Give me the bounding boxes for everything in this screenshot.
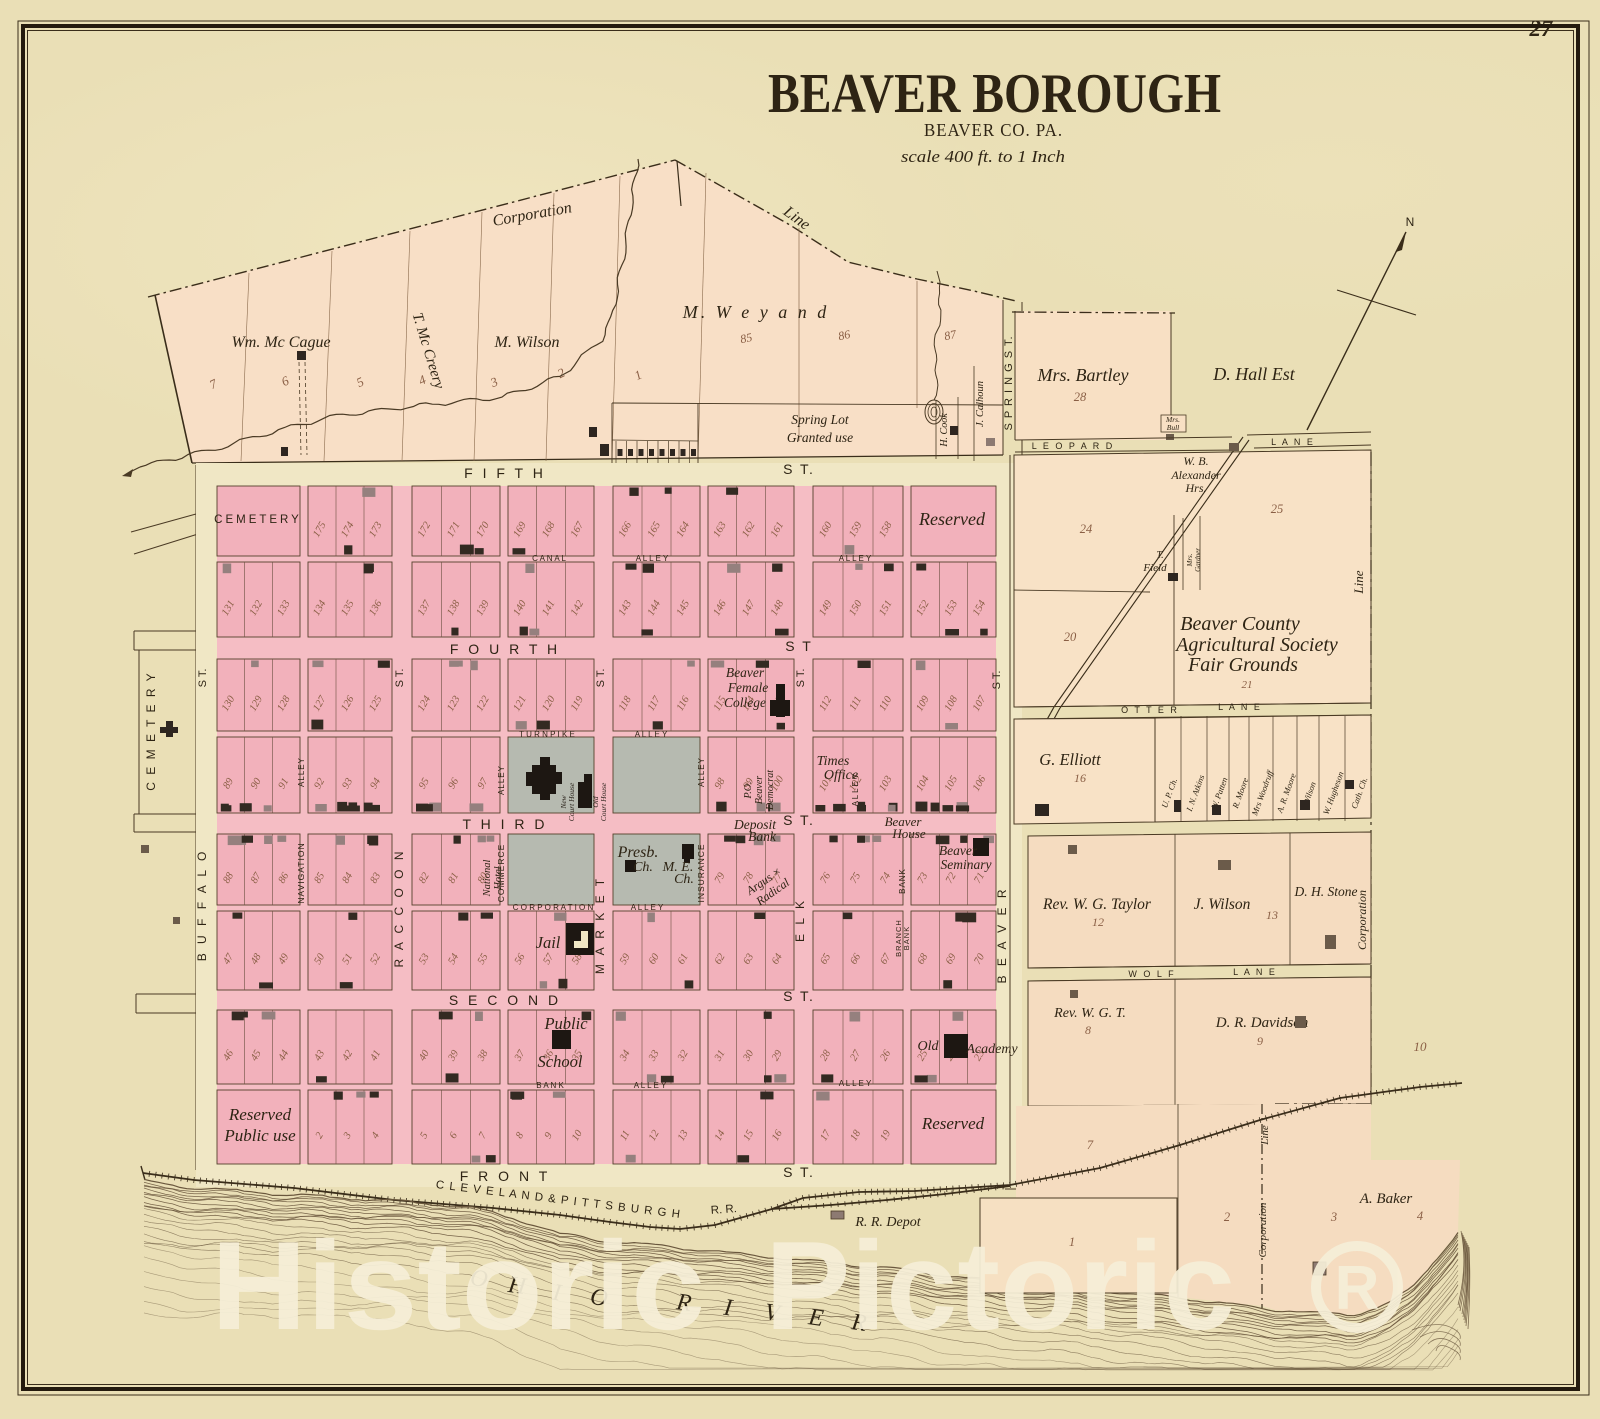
svg-text:9: 9: [1257, 1034, 1263, 1048]
svg-text:O T T E R: O T T E R: [1121, 705, 1179, 715]
svg-text:S T: S T: [785, 638, 813, 654]
svg-text:Beaver County: Beaver County: [1180, 613, 1300, 635]
svg-text:INSURANCE: INSURANCE: [696, 843, 706, 902]
svg-text:L E O P A R D: L E O P A R D: [1032, 441, 1115, 451]
svg-text:S T.: S T.: [595, 669, 607, 688]
svg-text:Beaver: Beaver: [726, 665, 765, 680]
svg-text:13: 13: [1266, 908, 1278, 922]
svg-text:M A R K E T: M A R K E T: [593, 876, 607, 974]
svg-text:S T.: S T.: [197, 669, 209, 688]
svg-text:21: 21: [1242, 679, 1253, 691]
svg-text:28: 28: [1074, 390, 1087, 404]
svg-text:Wm. Mc Cague: Wm. Mc Cague: [231, 334, 330, 351]
svg-text:S T.: S T.: [795, 669, 807, 688]
svg-text:Bank: Bank: [748, 829, 777, 844]
svg-text:B E A V E R: B E A V E R: [995, 886, 1009, 983]
svg-text:G. Elliott: G. Elliott: [1039, 750, 1101, 769]
svg-text:12: 12: [1092, 915, 1104, 929]
svg-text:Female: Female: [727, 680, 768, 695]
svg-text:C O R P O R A T I O N: C O R P O R A T I O N: [513, 903, 594, 912]
svg-text:Ch.: Ch.: [674, 872, 694, 887]
svg-text:Hrs.: Hrs.: [1184, 481, 1206, 495]
svg-text:Field: Field: [1142, 562, 1167, 574]
svg-text:D. R. Davidson: D. R. Davidson: [1215, 1015, 1309, 1031]
svg-text:National: National: [482, 860, 493, 898]
svg-text:BEAVER BOROUGH: BEAVER BOROUGH: [768, 63, 1221, 125]
svg-text:Reserved: Reserved: [918, 509, 986, 529]
svg-text:H. Cook: H. Cook: [939, 413, 950, 448]
svg-text:Granted use: Granted use: [787, 430, 853, 445]
svg-text:R A C C O O N: R A C C O O N: [392, 848, 406, 967]
svg-text:Fair Grounds: Fair Grounds: [1187, 654, 1298, 676]
svg-text:School: School: [538, 1052, 583, 1071]
svg-text:E L K: E L K: [793, 898, 807, 942]
svg-text:Ch.: Ch.: [633, 860, 653, 875]
svg-text:Historic: Historic: [211, 1215, 705, 1356]
svg-text:S T.: S T.: [783, 461, 815, 477]
svg-text:A L L E Y: A L L E Y: [635, 730, 668, 739]
svg-text:Public: Public: [543, 1014, 588, 1033]
svg-text:BEAVER CO. PA.: BEAVER CO. PA.: [924, 120, 1063, 140]
svg-text:A L L E Y: A L L E Y: [636, 554, 669, 563]
svg-text:Line: Line: [1259, 1125, 1271, 1146]
svg-text:Corporation: Corporation: [1355, 890, 1369, 950]
svg-text:S T.: S T.: [783, 812, 815, 828]
svg-text:F O U R T H: F O U R T H: [450, 641, 560, 657]
svg-text:Hotel: Hotel: [493, 866, 504, 890]
svg-text:Beaver: Beaver: [939, 843, 978, 858]
svg-text:Times: Times: [817, 754, 850, 769]
svg-text:10: 10: [1414, 1039, 1428, 1054]
svg-text:A L L E Y: A L L E Y: [631, 903, 664, 912]
svg-text:B A N K: B A N K: [536, 1081, 564, 1090]
svg-text:L A N E: L A N E: [1233, 967, 1277, 977]
svg-text:B U F F A L O: B U F F A L O: [195, 849, 209, 962]
svg-text:ALLEY: ALLEY: [497, 765, 506, 795]
svg-text:Mrs.: Mrs.: [1186, 553, 1194, 567]
svg-text:Bull: Bull: [1167, 423, 1180, 432]
svg-text:Agricultural Society: Agricultural Society: [1174, 634, 1338, 656]
svg-text:A L L E Y: A L L E Y: [634, 1081, 667, 1090]
svg-text:Public use: Public use: [223, 1126, 296, 1145]
svg-text:College: College: [724, 695, 766, 710]
svg-text:Democrat: Democrat: [765, 770, 776, 811]
svg-text:N: N: [1406, 215, 1415, 229]
svg-text:W O L F: W O L F: [1128, 969, 1175, 979]
svg-text:Beaver: Beaver: [754, 776, 765, 804]
svg-text:Spring Lot: Spring Lot: [791, 412, 850, 427]
svg-text:BANK: BANK: [898, 868, 907, 894]
svg-text:F R O N T: F R O N T: [460, 1168, 551, 1184]
svg-text:Gardner: Gardner: [1194, 548, 1202, 572]
svg-text:Seminary: Seminary: [941, 857, 992, 872]
svg-text:T H I R D: T H I R D: [462, 816, 547, 832]
svg-text:R. R.: R. R.: [710, 1203, 737, 1217]
svg-text:S E C O N D: S E C O N D: [449, 992, 561, 1008]
svg-text:Alexander: Alexander: [1170, 468, 1221, 482]
svg-text:Pictoric: Pictoric: [765, 1215, 1235, 1356]
svg-text:C A N A L: C A N A L: [532, 554, 566, 563]
svg-text:24: 24: [1080, 522, 1093, 536]
svg-text:M. Wilson: M. Wilson: [494, 334, 560, 351]
svg-text:Mrs. Bartley: Mrs. Bartley: [1037, 365, 1129, 385]
svg-text:C E M E T E R Y: C E M E T E R Y: [144, 671, 158, 790]
svg-text:S T.: S T.: [394, 669, 406, 688]
svg-text:25: 25: [1271, 502, 1284, 516]
svg-text:BANK: BANK: [902, 926, 911, 950]
svg-text:S T.: S T.: [783, 1164, 815, 1180]
svg-text:Office: Office: [824, 768, 858, 783]
svg-text:Court House: Court House: [599, 782, 608, 821]
svg-text:8: 8: [1085, 1023, 1091, 1037]
svg-text:Jail: Jail: [536, 933, 561, 952]
svg-text:W. B.: W. B.: [1183, 454, 1208, 468]
svg-text:CEMETERY: CEMETERY: [214, 514, 302, 526]
svg-text:D. H. Stone: D. H. Stone: [1294, 884, 1358, 899]
svg-text:16: 16: [1074, 771, 1086, 785]
svg-text:S P R I N G S T.: S P R I N G S T.: [1003, 335, 1015, 430]
svg-text:L A N E: L A N E: [1218, 702, 1262, 712]
svg-text:ALLEY: ALLEY: [697, 757, 706, 787]
svg-text:A L L E Y: A L L E Y: [839, 554, 872, 563]
svg-text:House: House: [891, 826, 925, 841]
svg-text:J. Calhoun: J. Calhoun: [975, 381, 986, 427]
svg-text:7: 7: [1087, 1138, 1094, 1152]
svg-text:A L L E Y: A L L E Y: [839, 1079, 872, 1088]
svg-text:27: 27: [1529, 16, 1555, 41]
svg-text:ALLEY: ALLEY: [297, 757, 306, 787]
svg-text:R: R: [1335, 1254, 1380, 1323]
svg-text:T U R N P I K E: T U R N P I K E: [519, 730, 575, 739]
svg-text:P.O.: P.O.: [743, 781, 754, 799]
svg-text:D. Hall Est: D. Hall Est: [1212, 364, 1296, 384]
svg-text:NAVIGATION: NAVIGATION: [296, 842, 306, 903]
svg-text:A. Baker: A. Baker: [1359, 1191, 1413, 1207]
svg-text:J. Wilson: J. Wilson: [1194, 896, 1251, 913]
svg-text:Line: Line: [1351, 570, 1366, 594]
svg-text:Presb.: Presb.: [617, 844, 659, 861]
svg-text:S T.: S T.: [991, 671, 1003, 690]
svg-text:T.: T.: [1156, 550, 1163, 561]
svg-text:20: 20: [1064, 630, 1077, 644]
svg-text:L A N E: L A N E: [1271, 437, 1315, 447]
svg-text:4: 4: [1417, 1209, 1423, 1223]
svg-text:3: 3: [1330, 1210, 1337, 1224]
svg-text:Reserved: Reserved: [228, 1105, 292, 1124]
svg-text:Reserved: Reserved: [921, 1114, 985, 1133]
svg-text:Court House: Court House: [567, 782, 576, 821]
svg-text:S T.: S T.: [783, 988, 815, 1004]
svg-text:Rev. W. G. T.: Rev. W. G. T.: [1053, 1006, 1126, 1021]
svg-text:M. W e y a n d: M. W e y a n d: [682, 302, 829, 322]
svg-text:Corporation: Corporation: [1257, 1202, 1269, 1258]
svg-text:F I F T H: F I F T H: [464, 465, 546, 481]
svg-text:Old: Old: [918, 1039, 940, 1054]
svg-text:scale 400 ft. to 1 Inch: scale 400 ft. to 1 Inch: [901, 147, 1065, 166]
svg-text:Rev. W. G. Taylor: Rev. W. G. Taylor: [1042, 896, 1152, 913]
